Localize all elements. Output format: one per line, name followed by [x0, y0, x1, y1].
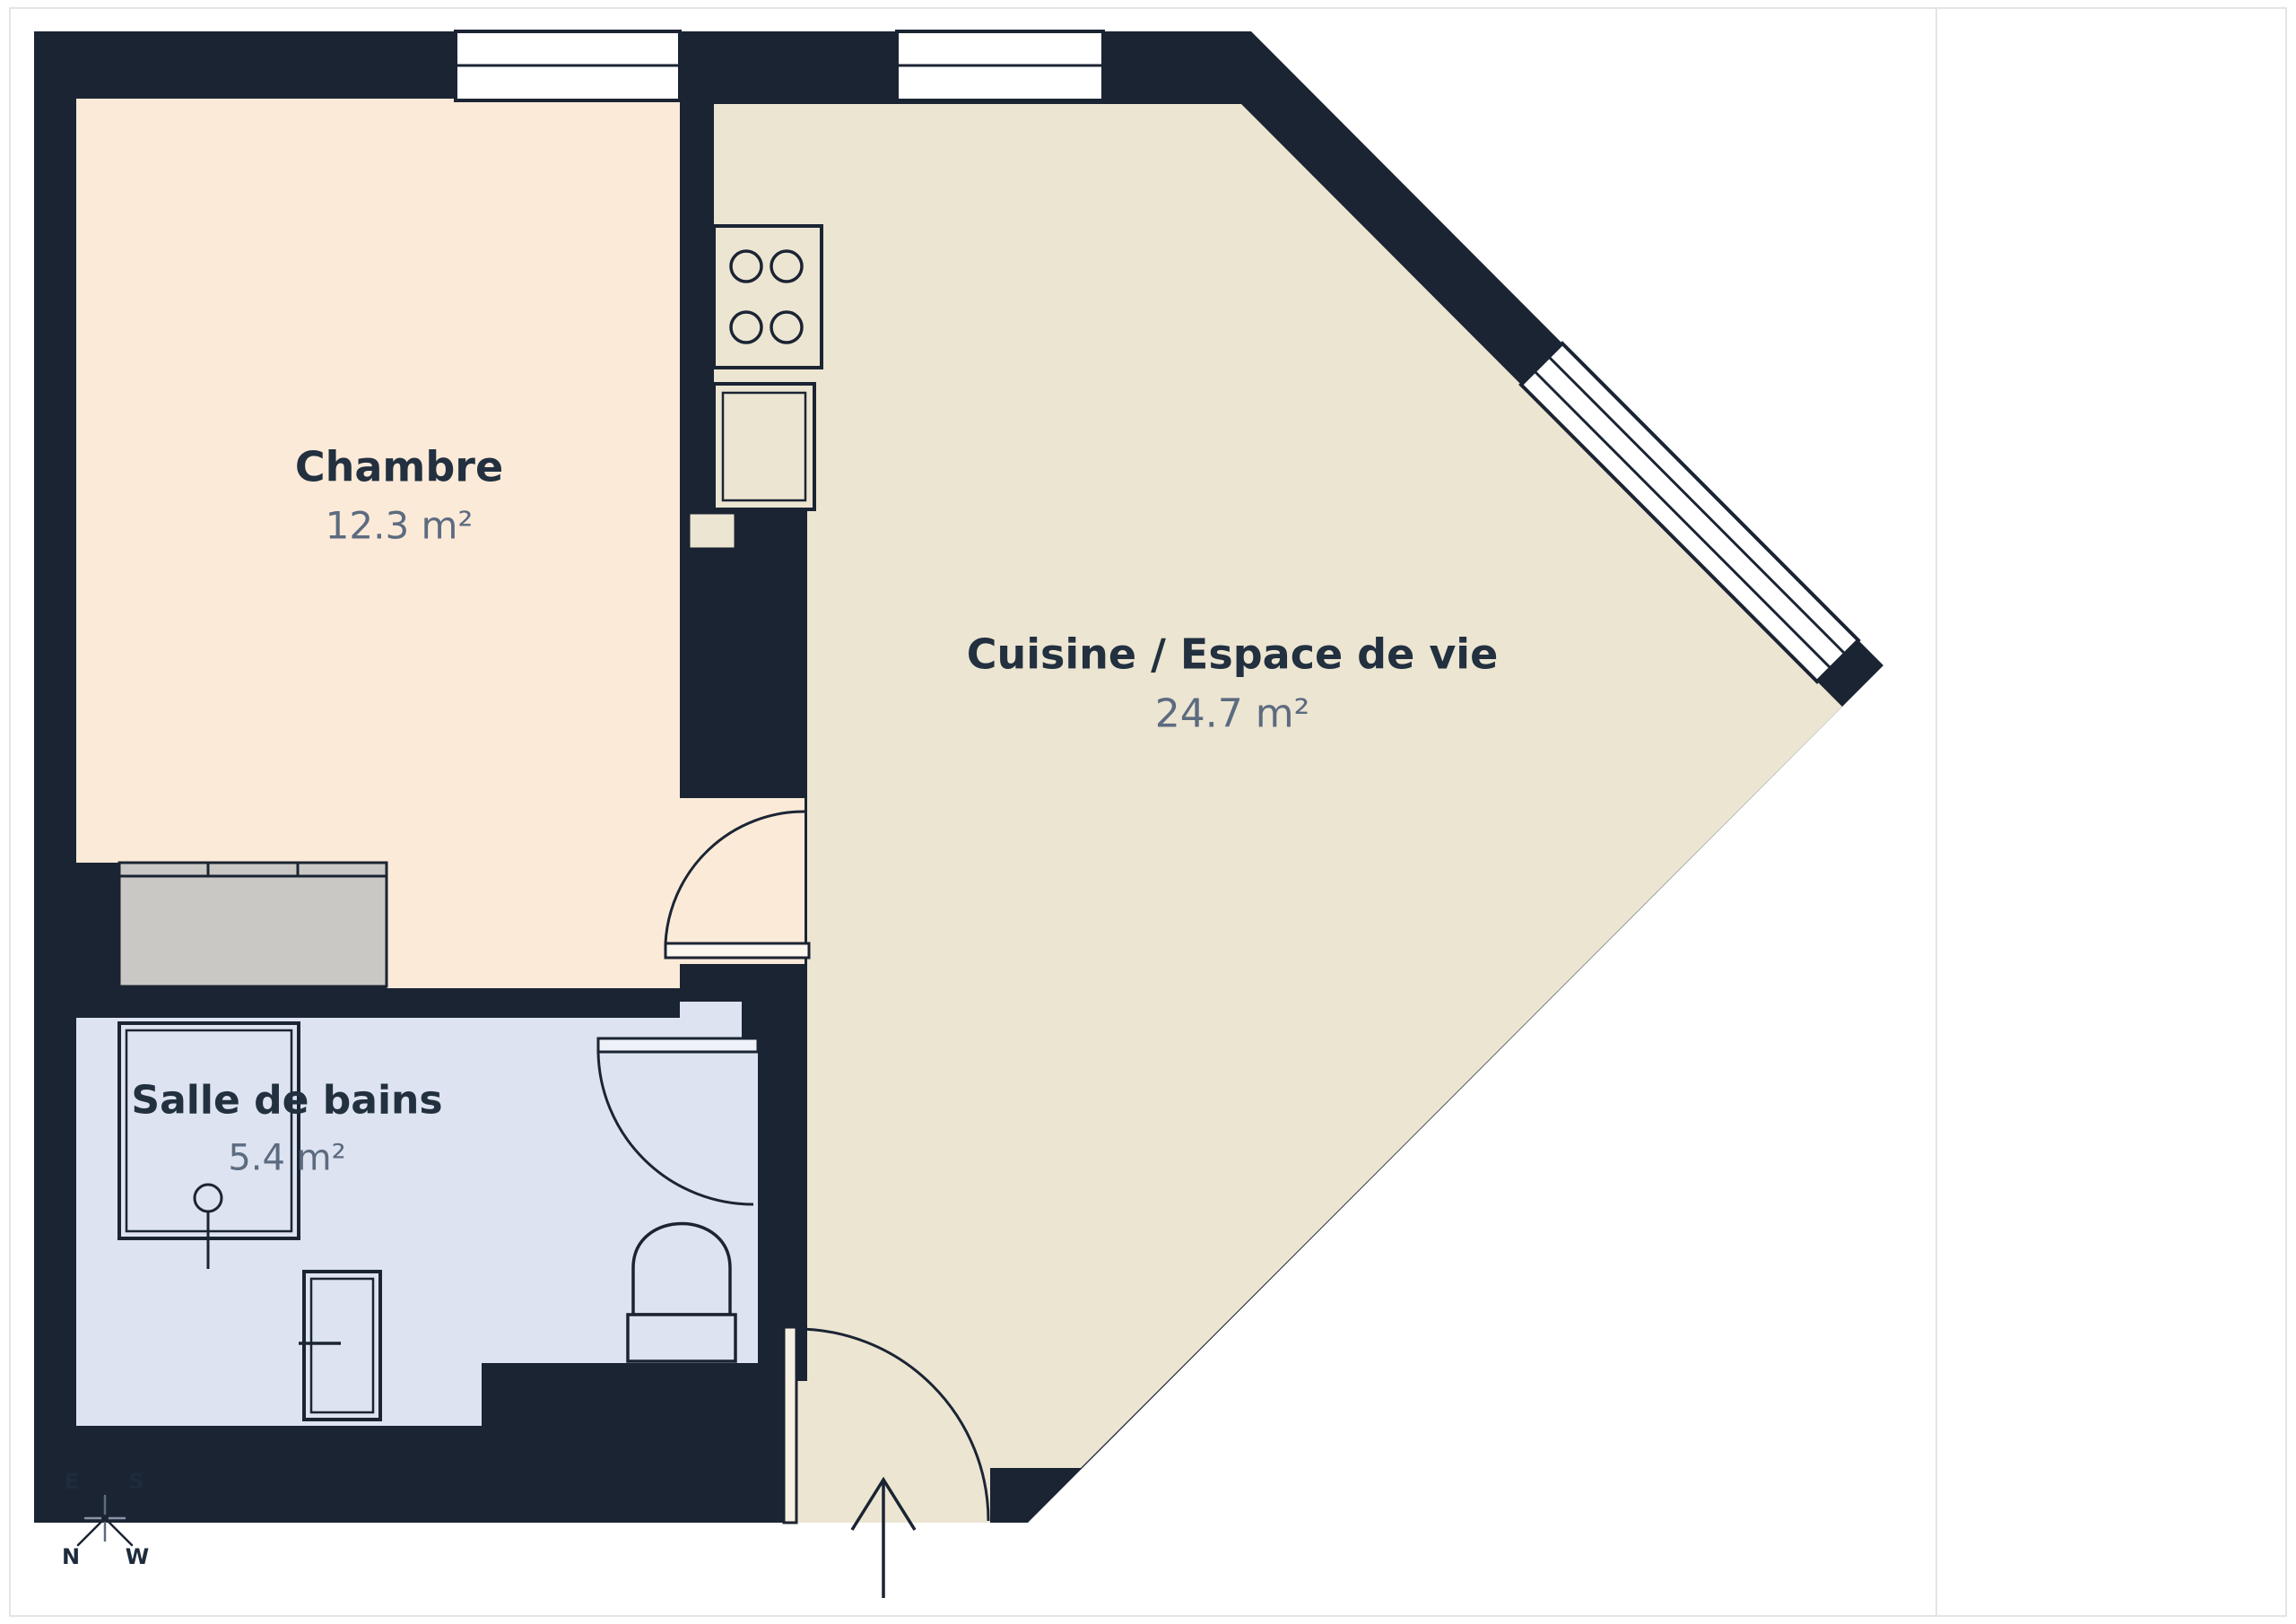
stove — [714, 226, 822, 368]
compass-label-e: E — [65, 1469, 79, 1494]
bathroom-sink — [299, 1272, 380, 1420]
room-label-chambre: Chambre 12.3 m² — [295, 443, 503, 548]
floor-cuisine — [714, 104, 1842, 1523]
closet — [119, 863, 387, 986]
room-label-cuisine: Cuisine / Espace de vie 24.7 m² — [967, 630, 1499, 737]
room-name: Cuisine / Espace de vie — [967, 630, 1499, 679]
compass-label-s: S — [128, 1469, 143, 1494]
room-label-salle-de-bains: Salle de bains 5.4 m² — [131, 1078, 442, 1179]
floor-chambre-door-nook — [680, 798, 804, 964]
window-chambre — [456, 31, 680, 100]
floor-plan: E S N W — [0, 0, 1937, 1624]
sidebar: Surface totale approximative(1) 43.2 m² … — [1935, 7, 2287, 1617]
room-area: 12.3 m² — [295, 504, 503, 548]
compass-label-n: N — [62, 1544, 80, 1569]
compass-icon — [78, 1491, 132, 1545]
window-cuisine-top — [897, 31, 1103, 100]
room-name: Salle de bains — [131, 1078, 442, 1124]
room-area: 24.7 m² — [967, 691, 1499, 737]
room-name: Chambre — [295, 443, 503, 491]
compass-label-w: W — [126, 1544, 149, 1569]
room-area: 5.4 m² — [131, 1138, 442, 1179]
toilet — [628, 1224, 735, 1362]
